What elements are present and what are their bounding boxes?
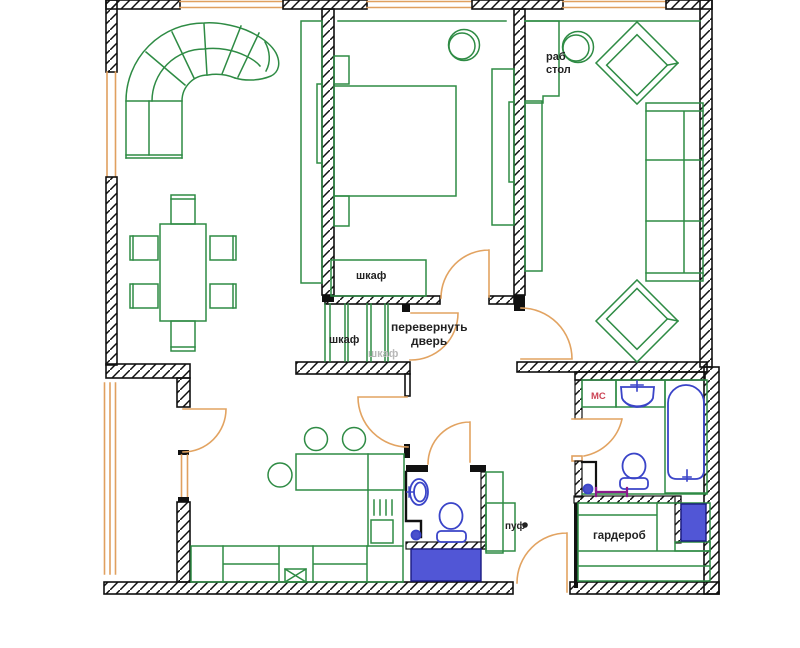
svg-text:раб: раб <box>546 51 566 63</box>
svg-text:стол: стол <box>546 64 571 76</box>
svg-text:МС: МС <box>591 391 606 402</box>
svg-text:гардероб: гардероб <box>593 530 646 542</box>
svg-text:дверь: дверь <box>411 334 447 348</box>
svg-text:шкаф: шкаф <box>368 348 399 360</box>
svg-text:шкаф: шкаф <box>329 334 360 346</box>
svg-text:перевернуть: перевернуть <box>391 320 467 334</box>
svg-text:шкаф: шкаф <box>356 270 387 282</box>
